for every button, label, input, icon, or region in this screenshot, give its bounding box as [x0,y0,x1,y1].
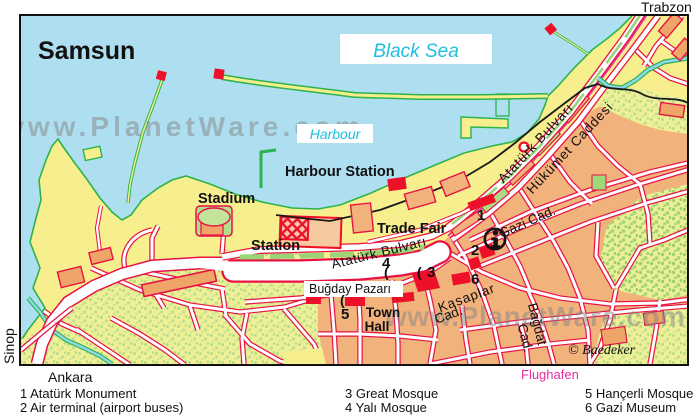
svg-text:4 Yalı Mosque: 4 Yalı Mosque [345,400,427,415]
svg-text:© Baedeker: © Baedeker [568,343,636,358]
svg-text:Samsun: Samsun [38,37,135,65]
svg-text:1: 1 [477,207,485,224]
svg-text:Station: Station [251,238,300,254]
svg-text:Harbour: Harbour [310,126,362,142]
svg-text:3: 3 [427,264,435,281]
svg-text:2 Air terminal (airport buses: 2 Air terminal (airport buses) [20,400,183,415]
svg-text:5 Hançerli Mosque: 5 Hançerli Mosque [585,386,693,401]
svg-text:Harbour Station: Harbour Station [285,164,395,180]
svg-text:6 Gazi Museum: 6 Gazi Museum [585,400,676,415]
svg-text:3 Great Mosque: 3 Great Mosque [345,386,438,401]
svg-text:Flughafen: Flughafen [521,367,579,382]
svg-text:Black Sea: Black Sea [373,41,459,62]
svg-text:2: 2 [471,242,479,259]
svg-text:6: 6 [471,271,479,288]
svg-text:Hall: Hall [365,319,390,334]
svg-text:Town: Town [366,305,400,320]
svg-text:Trabzon: Trabzon [641,0,692,15]
svg-text:Ankara: Ankara [48,369,93,385]
svg-text:Sinop: Sinop [1,328,17,364]
svg-text:5: 5 [341,306,349,323]
svg-text:Buğday Pazarı: Buğday Pazarı [309,282,391,296]
svg-text:(: ( [417,264,422,280]
svg-text:(: ( [384,264,389,280]
svg-text:Stadium: Stadium [198,191,255,207]
svg-text:(: ( [340,292,345,308]
svg-text:Trade Fair: Trade Fair [377,221,447,237]
svg-text:1 Atatürk Monument: 1 Atatürk Monument [20,386,137,401]
